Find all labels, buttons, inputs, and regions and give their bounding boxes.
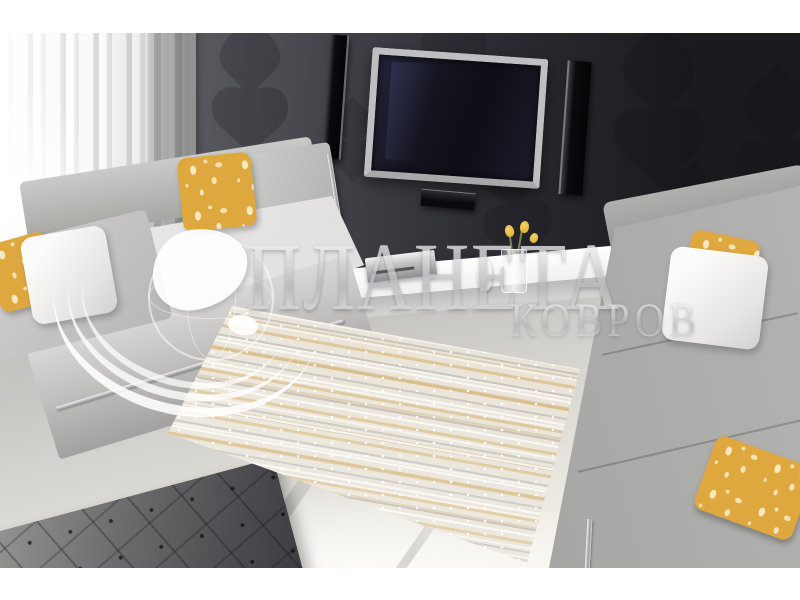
white-figurine: [477, 258, 492, 291]
living-room-photo: ПЛАНЕТА КОВРОВ: [0, 33, 800, 568]
damask-ornament: [598, 33, 720, 189]
white-pillow: [661, 245, 770, 350]
damask-ornament: [200, 33, 300, 155]
glass-vase: [501, 249, 527, 293]
tv-screen-reflection: [385, 61, 440, 163]
screenshot-canvas: ПЛАНЕТА КОВРОВ: [0, 0, 800, 600]
white-pillow: [19, 224, 119, 326]
wall-mounted-tv: [364, 47, 549, 189]
yellow-damask-pillow: [176, 151, 257, 232]
